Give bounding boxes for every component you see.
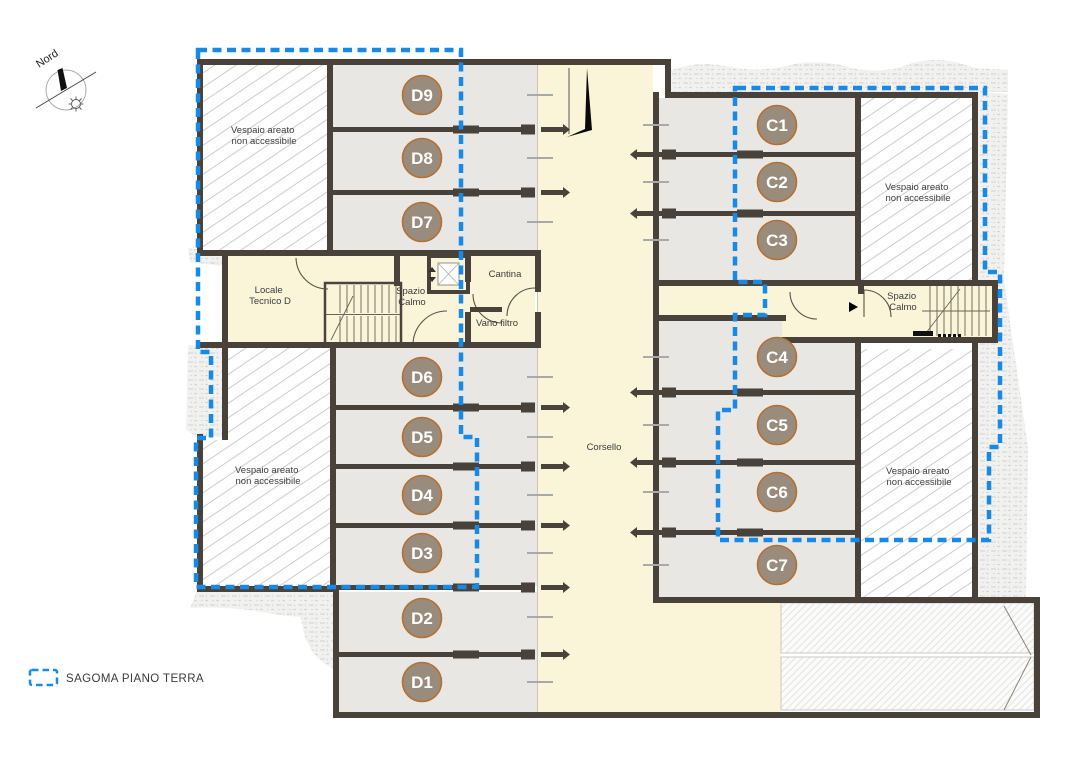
- stall-label-c4: C4: [766, 348, 788, 367]
- cantina-label: Cantina: [489, 269, 522, 280]
- stall-label-d2: D2: [411, 609, 433, 628]
- north-label: Nord: [34, 47, 61, 70]
- stall-label-d3: D3: [411, 544, 433, 563]
- legend-sagoma-label: SAGOMA PIANO TERRA: [66, 673, 204, 685]
- ramp: [781, 603, 1034, 710]
- stall-label-c5: C5: [766, 416, 788, 435]
- ramp-lane-1: [781, 603, 1034, 653]
- stall-label-c6: C6: [766, 483, 788, 502]
- stall-label-d6: D6: [411, 368, 433, 387]
- stall-label-c7: C7: [766, 556, 788, 575]
- stall-label-d4: D4: [411, 486, 433, 505]
- vespaio-label-bottom-left: Vespaio areato non accessibile: [235, 465, 301, 487]
- stall-label-c2: C2: [766, 173, 788, 192]
- legend-sagoma-swatch: [30, 670, 57, 685]
- stall-label-d7: D7: [411, 213, 433, 232]
- vespaio-top-left: [203, 65, 327, 250]
- north-compass: Nord: [34, 47, 96, 111]
- stall-label-d5: D5: [411, 428, 433, 447]
- spazio-calmo-right-label: Spazio Calmo: [887, 291, 919, 313]
- vespaio-label-top-left: Vespaio areato non accessibile: [231, 125, 297, 147]
- vano-filtro-label: Vano filtro: [476, 318, 518, 329]
- passage-floor: [782, 286, 864, 337]
- floor-plan-drawing: D9 D8 D7 D6 D5 D4 D3 D2 D1 C1 C2 C3 C4 C…: [0, 0, 1076, 780]
- stall-label-c1: C1: [766, 116, 788, 135]
- corsello-label: Corsello: [587, 442, 622, 453]
- vespaio-label-top-right: Vespaio areato non accessibile: [885, 182, 951, 204]
- stall-markers-d: D9 D8 D7 D6 D5 D4 D3 D2 D1: [403, 76, 442, 702]
- tactile-strip: [913, 331, 933, 336]
- spazio-calmo-left-label: Spazio Calmo: [396, 286, 428, 308]
- corridor-floor-bottom: [537, 597, 781, 712]
- ramp-lane-2: [781, 657, 1034, 710]
- locale-tecnico-label: Locale Tecnico D: [249, 285, 291, 307]
- stall-label-d9: D9: [411, 86, 433, 105]
- vespaio-label-bottom-right: Vespaio areato non accessibile: [886, 466, 952, 488]
- corridor-floor: [537, 65, 653, 603]
- stall-label-d1: D1: [411, 673, 433, 692]
- stall-label-c3: C3: [766, 231, 788, 250]
- stall-label-d8: D8: [411, 149, 433, 168]
- legend: SAGOMA PIANO TERRA: [30, 670, 204, 685]
- floor-plan-page: D9 D8 D7 D6 D5 D4 D3 D2 D1 C1 C2 C3 C4 C…: [0, 0, 1076, 780]
- sun-icon: [69, 97, 84, 112]
- north-needle-icon: [58, 68, 68, 91]
